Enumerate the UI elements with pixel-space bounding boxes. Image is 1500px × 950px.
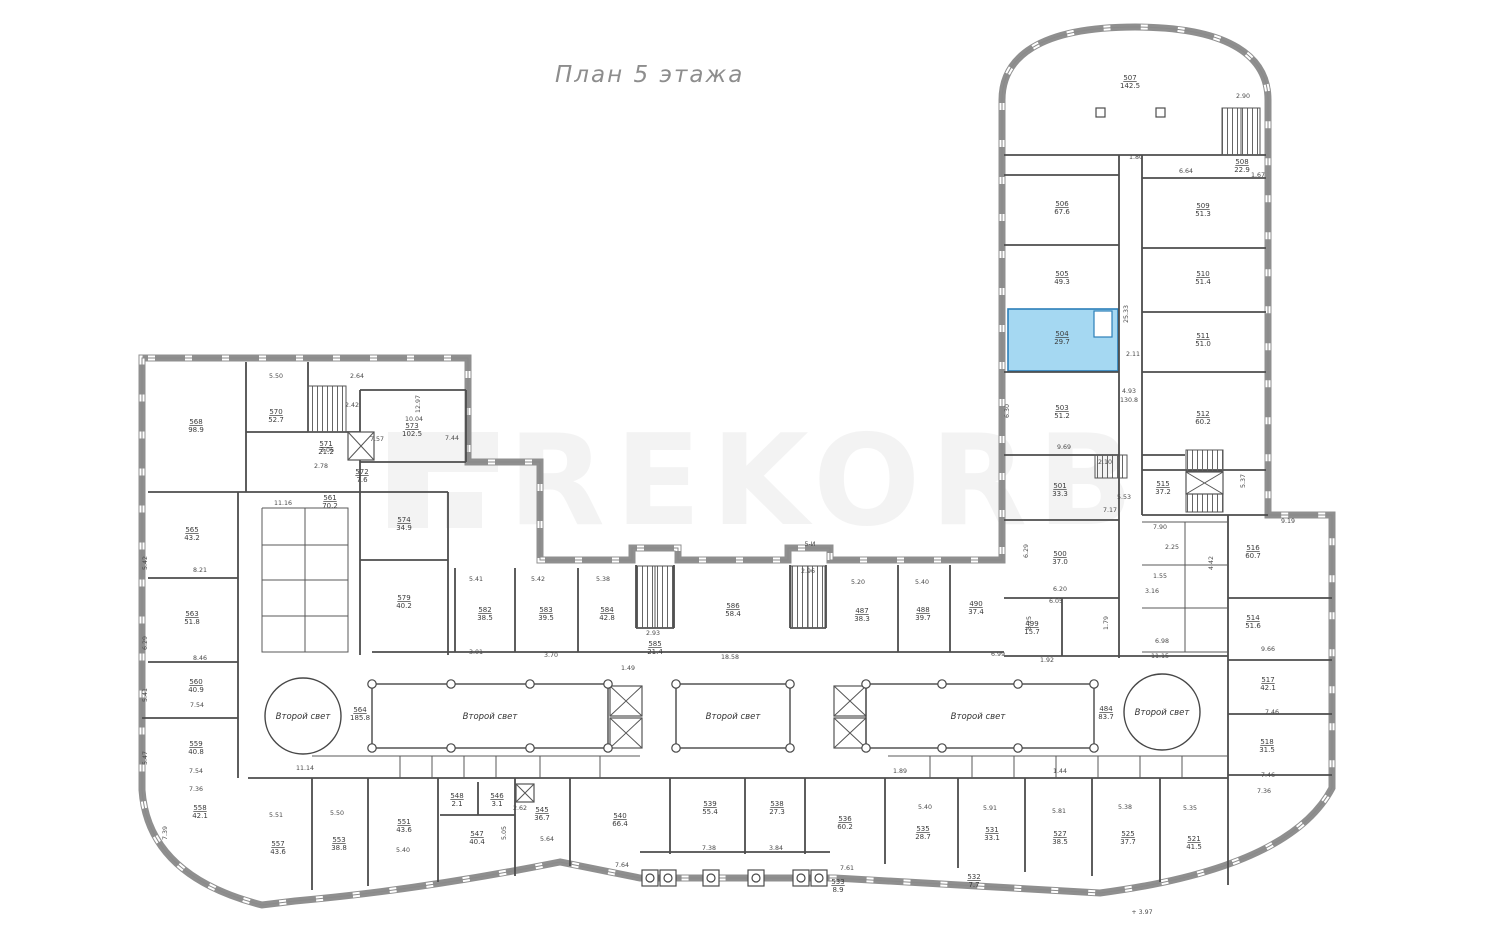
svg-text:1.49: 1.49 — [621, 665, 635, 672]
elevator-icon — [834, 718, 866, 748]
svg-text:6.29: 6.29 — [142, 636, 149, 650]
room-label-508: 50822.9 — [1234, 158, 1250, 174]
svg-text:4.93: 4.93 — [1122, 388, 1136, 395]
svg-text:4.42: 4.42 — [1208, 556, 1215, 570]
svg-text:43.6: 43.6 — [270, 848, 286, 856]
svg-text:5.47: 5.47 — [142, 751, 149, 765]
svg-text:2.10: 2.10 — [1098, 459, 1112, 466]
svg-text:6.20: 6.20 — [1053, 586, 1067, 593]
room-label-582: 58238.5 — [477, 606, 493, 622]
svg-text:507: 507 — [1123, 74, 1136, 82]
svg-text:484: 484 — [1099, 705, 1113, 713]
svg-text:1.44: 1.44 — [1053, 768, 1067, 775]
svg-text:51.2: 51.2 — [1054, 412, 1070, 420]
svg-text:5.42: 5.42 — [142, 556, 149, 570]
svg-text:7.46: 7.46 — [1265, 709, 1279, 716]
svg-text:9.66: 9.66 — [1261, 646, 1275, 653]
svg-text:540: 540 — [613, 812, 626, 820]
terrace-column — [748, 870, 764, 886]
svg-text:516: 516 — [1246, 544, 1260, 552]
room-label-509: 50951.3 — [1195, 202, 1211, 218]
room-label-574: 57434.9 — [396, 516, 412, 532]
svg-text:7.57: 7.57 — [370, 436, 384, 443]
room-label-548: 5482.1 — [450, 792, 463, 808]
svg-text:5.81: 5.81 — [1052, 808, 1066, 815]
svg-text:558: 558 — [193, 804, 206, 812]
svg-text:514: 514 — [1246, 614, 1260, 622]
dome-column — [1096, 108, 1105, 117]
staircase-icon — [1222, 108, 1260, 155]
svg-text:2.93: 2.93 — [646, 630, 660, 637]
svg-text:6.30: 6.30 — [1004, 404, 1011, 418]
svg-text:7.46: 7.46 — [1261, 772, 1275, 779]
svg-text:511: 511 — [1196, 332, 1209, 340]
svg-text:2.96: 2.96 — [801, 568, 815, 575]
terrace-column — [811, 870, 827, 886]
svg-text:561: 561 — [323, 494, 336, 502]
svg-text:7.61: 7.61 — [840, 865, 854, 872]
svg-text:572: 572 — [355, 468, 368, 476]
svg-text:546: 546 — [490, 792, 504, 800]
room-label-558: 55842.1 — [192, 804, 208, 820]
room-label-586: 58658.4 — [725, 602, 741, 618]
svg-text:83.7: 83.7 — [1098, 713, 1114, 721]
floor-plan-svg: REKORB План 5 этажа — [0, 0, 1500, 950]
svg-text:43.2: 43.2 — [184, 534, 200, 542]
elevator-icon — [834, 686, 866, 716]
svg-text:505: 505 — [1055, 270, 1068, 278]
svg-text:34.9: 34.9 — [396, 524, 412, 532]
svg-text:38.5: 38.5 — [1052, 838, 1068, 846]
svg-text:6.29: 6.29 — [1023, 544, 1030, 558]
svg-text:70.2: 70.2 — [322, 502, 338, 510]
svg-text:39.5: 39.5 — [538, 614, 554, 622]
svg-text:584: 584 — [600, 606, 614, 614]
svg-text:37.2: 37.2 — [1155, 488, 1171, 496]
svg-text:7.54: 7.54 — [189, 768, 203, 775]
room-label-488: 48839.7 — [915, 606, 931, 622]
svg-text:40.8: 40.8 — [188, 748, 204, 756]
svg-text:1.80: 1.80 — [1129, 154, 1143, 161]
svg-text:1.89: 1.89 — [893, 768, 907, 775]
room-label-585: 58521.4 — [647, 640, 663, 656]
room-label-568: 56898.9 — [188, 418, 204, 434]
svg-text:5.51: 5.51 — [269, 812, 283, 819]
svg-text:38.3: 38.3 — [854, 615, 870, 623]
room-label-527: 52738.5 — [1052, 830, 1068, 846]
svg-text:58.4: 58.4 — [725, 610, 741, 618]
svg-text:5.40: 5.40 — [396, 847, 410, 854]
staircase-icon — [637, 566, 673, 628]
svg-text:2.25: 2.25 — [1165, 544, 1179, 551]
svg-text:1.92: 1.92 — [1040, 657, 1054, 664]
room-label-511: 51151.0 — [1195, 332, 1211, 348]
svg-text:3.1: 3.1 — [491, 800, 502, 808]
svg-text:563: 563 — [185, 610, 198, 618]
svg-text:2.64: 2.64 — [350, 373, 364, 380]
svg-text:43.6: 43.6 — [396, 826, 412, 834]
svg-text:517: 517 — [1261, 676, 1274, 684]
room-label-539: 53955.4 — [702, 800, 718, 816]
svg-text:5.50: 5.50 — [269, 373, 283, 380]
svg-text:29.7: 29.7 — [1054, 338, 1070, 346]
room-label-536: 53660.2 — [837, 815, 853, 831]
terrace-column — [793, 870, 809, 886]
terrace-column — [642, 870, 658, 886]
svg-text:2.1: 2.1 — [451, 800, 462, 808]
svg-text:5.40: 5.40 — [915, 579, 929, 586]
svg-text:33.1: 33.1 — [984, 834, 1000, 842]
svg-text:5.42: 5.42 — [531, 576, 545, 583]
svg-text:509: 509 — [1196, 202, 1209, 210]
svg-text:51.6: 51.6 — [1245, 622, 1261, 630]
svg-text:533: 533 — [831, 878, 844, 886]
watermark-text: REKORB — [508, 407, 1143, 554]
svg-text:7.44: 7.44 — [445, 435, 459, 442]
room-label-504: 50429.7 — [1054, 330, 1070, 346]
svg-text:42.1: 42.1 — [192, 812, 208, 820]
room-label-551: 55143.6 — [396, 818, 412, 834]
svg-text:579: 579 — [397, 594, 410, 602]
svg-text:536: 536 — [838, 815, 852, 823]
svg-text:582: 582 — [478, 606, 491, 614]
svg-text:532: 532 — [967, 873, 980, 881]
room-label-572: 5727.6 — [355, 468, 368, 484]
room-label-560: 56040.9 — [188, 678, 204, 694]
svg-text:3.06: 3.06 — [320, 447, 334, 454]
svg-text:5.50: 5.50 — [330, 810, 344, 817]
svg-text:5.41: 5.41 — [469, 576, 483, 583]
svg-text:6.98: 6.98 — [1155, 638, 1169, 645]
svg-text:52.7: 52.7 — [268, 416, 284, 424]
svg-text:3.84: 3.84 — [769, 845, 783, 852]
svg-text:560: 560 — [189, 678, 202, 686]
svg-text:2.62: 2.62 — [513, 805, 527, 812]
staircase-icon — [308, 386, 346, 432]
svg-text:10.04: 10.04 — [405, 416, 423, 423]
svg-text:7.7: 7.7 — [968, 881, 979, 889]
svg-text:501: 501 — [1053, 482, 1066, 490]
svg-text:27.3: 27.3 — [769, 808, 785, 816]
svg-text:7.90: 7.90 — [1153, 524, 1167, 531]
room-label-570: 57052.7 — [268, 408, 284, 424]
svg-text:9.69: 9.69 — [1057, 444, 1071, 451]
elevator-icon — [1186, 472, 1223, 494]
svg-text:521: 521 — [1187, 835, 1200, 843]
svg-text:535: 535 — [916, 825, 929, 833]
svg-text:11.15: 11.15 — [1151, 653, 1169, 660]
svg-text:531: 531 — [985, 826, 998, 834]
svg-text:5.38: 5.38 — [1118, 804, 1132, 811]
room-label-579: 57940.2 — [396, 594, 412, 610]
svg-text:6.99: 6.99 — [991, 651, 1005, 658]
svg-text:41.5: 41.5 — [1186, 843, 1202, 851]
elevation-note: + 3.97 — [1131, 909, 1152, 916]
svg-text:102.5: 102.5 — [402, 430, 422, 438]
svg-text:7.54: 7.54 — [190, 702, 204, 709]
svg-text:37.7: 37.7 — [1120, 838, 1136, 846]
svg-text:500: 500 — [1053, 550, 1066, 558]
svg-text:33.3: 33.3 — [1052, 490, 1068, 498]
room-label-533: 5338.9 — [831, 878, 844, 894]
svg-text:142.5: 142.5 — [1120, 82, 1140, 90]
room-label-500: 50037.0 — [1052, 550, 1068, 566]
highlighted-room-notch — [1094, 311, 1112, 337]
svg-text:31.5: 31.5 — [1259, 746, 1275, 754]
page-title: План 5 этажа — [555, 62, 744, 88]
svg-text:5.64: 5.64 — [540, 836, 554, 843]
svg-text:583: 583 — [539, 606, 552, 614]
room-label-514: 51451.6 — [1245, 614, 1261, 630]
svg-text:3.01: 3.01 — [469, 649, 483, 656]
svg-text:7.36: 7.36 — [189, 786, 203, 793]
svg-text:60.7: 60.7 — [1245, 552, 1261, 560]
svg-text:38.8: 38.8 — [331, 844, 347, 852]
room-label-545: 54536.7 — [534, 806, 550, 822]
svg-text:25.33: 25.33 — [1123, 305, 1130, 323]
svg-text:98.9: 98.9 — [188, 426, 204, 434]
svg-text:490: 490 — [969, 600, 982, 608]
svg-text:551: 551 — [397, 818, 410, 826]
svg-text:40.4: 40.4 — [469, 838, 485, 846]
svg-text:2.42: 2.42 — [345, 402, 359, 409]
room-label-506: 50667.6 — [1054, 200, 1070, 216]
room-label-501: 50133.3 — [1052, 482, 1068, 498]
room-label-546: 5463.1 — [490, 792, 504, 808]
svg-text:527: 527 — [1053, 830, 1066, 838]
svg-text:22.9: 22.9 — [1234, 166, 1250, 174]
svg-text:538: 538 — [770, 800, 783, 808]
room-label-540: 54066.4 — [612, 812, 628, 828]
svg-text:8.21: 8.21 — [193, 567, 207, 574]
svg-text:51.8: 51.8 — [184, 618, 200, 626]
svg-text:548: 548 — [450, 792, 463, 800]
room-label-490: 49037.4 — [968, 600, 984, 616]
svg-text:7.17: 7.17 — [1103, 507, 1117, 514]
elevator-icon — [516, 784, 534, 802]
svg-text:1.55: 1.55 — [1153, 573, 1167, 580]
svg-text:28.7: 28.7 — [915, 833, 931, 841]
terrace-column — [703, 870, 719, 886]
room-label-487: 48738.3 — [854, 607, 870, 623]
svg-text:36.7: 36.7 — [534, 814, 550, 822]
svg-text:585: 585 — [648, 640, 661, 648]
room-label-531: 53133.1 — [984, 826, 1000, 842]
svg-text:37.4: 37.4 — [968, 608, 984, 616]
atrium-label: Второй свет — [951, 712, 1007, 722]
atrium-label: Второй свет — [1135, 708, 1191, 718]
svg-text:7.6: 7.6 — [356, 476, 368, 484]
svg-text:5.40: 5.40 — [918, 804, 932, 811]
svg-text:487: 487 — [855, 607, 868, 615]
svg-text:8.9: 8.9 — [832, 886, 843, 894]
svg-text:66.4: 66.4 — [612, 820, 628, 828]
svg-text:570: 570 — [269, 408, 282, 416]
svg-text:553: 553 — [332, 836, 345, 844]
room-label-532: 5327.7 — [967, 873, 980, 889]
svg-text:3.70: 3.70 — [544, 652, 558, 659]
elevator-icon — [610, 718, 642, 748]
svg-text:11.16: 11.16 — [274, 500, 292, 507]
svg-text:7.36: 7.36 — [1257, 788, 1271, 795]
svg-text:7.39: 7.39 — [162, 826, 169, 840]
room-label-563: 56351.8 — [184, 610, 200, 626]
svg-text:5.20: 5.20 — [851, 579, 865, 586]
room-label-484: 48483.7 — [1098, 705, 1114, 721]
svg-text:6.05: 6.05 — [1049, 598, 1063, 605]
room-label-510: 51051.4 — [1195, 270, 1211, 286]
room-label-512: 51260.2 — [1195, 410, 1211, 426]
svg-text:5.25: 5.25 — [1026, 616, 1033, 630]
svg-text:37.0: 37.0 — [1052, 558, 1068, 566]
staircase-icon — [1186, 494, 1223, 512]
svg-text:539: 539 — [703, 800, 716, 808]
svg-text:573: 573 — [405, 422, 418, 430]
svg-text:5.91: 5.91 — [983, 805, 997, 812]
svg-text:6.64: 6.64 — [1179, 168, 1193, 175]
svg-text:515: 515 — [1156, 480, 1169, 488]
room-label-515: 51537.2 — [1155, 480, 1171, 496]
atrium-label: Второй свет — [463, 712, 519, 722]
room-label-538: 53827.3 — [769, 800, 785, 816]
svg-text:51.4: 51.4 — [1195, 278, 1211, 286]
staircase-icon — [791, 566, 825, 628]
dome-column — [1156, 108, 1165, 117]
svg-text:510: 510 — [1196, 270, 1209, 278]
svg-text:2.11: 2.11 — [1126, 351, 1140, 358]
svg-text:559: 559 — [189, 740, 202, 748]
svg-text:545: 545 — [535, 806, 548, 814]
svg-text:5.05: 5.05 — [501, 826, 508, 840]
svg-text:55.4: 55.4 — [702, 808, 718, 816]
atrium-label: Второй свет — [276, 712, 332, 722]
svg-text:512: 512 — [1196, 410, 1209, 418]
svg-text:2.78: 2.78 — [314, 463, 328, 470]
svg-text:42.1: 42.1 — [1260, 684, 1276, 692]
svg-text:185.8: 185.8 — [350, 714, 370, 722]
svg-text:568: 568 — [189, 418, 202, 426]
svg-text:42.8: 42.8 — [599, 614, 615, 622]
svg-text:18.58: 18.58 — [721, 654, 739, 661]
room-label-547: 54740.4 — [469, 830, 485, 846]
room-label-516: 51660.7 — [1245, 544, 1261, 560]
svg-text:7.38: 7.38 — [702, 845, 716, 852]
room-label-525: 52537.7 — [1120, 830, 1136, 846]
room-label-583: 58339.5 — [538, 606, 554, 622]
axis-note: 5-И — [805, 541, 816, 548]
room-label-535: 53528.7 — [915, 825, 931, 841]
room-label-521: 52141.5 — [1186, 835, 1202, 851]
room-label-559: 55940.8 — [188, 740, 204, 756]
svg-text:40.2: 40.2 — [396, 602, 412, 610]
room-label-557: 55743.6 — [270, 840, 286, 856]
svg-text:565: 565 — [185, 526, 198, 534]
svg-text:38.5: 38.5 — [477, 614, 493, 622]
svg-text:504: 504 — [1055, 330, 1069, 338]
svg-text:39.7: 39.7 — [915, 614, 931, 622]
svg-text:5.53: 5.53 — [1117, 494, 1131, 501]
svg-text:557: 557 — [271, 840, 284, 848]
svg-text:9.19: 9.19 — [1281, 518, 1295, 525]
room-label-518: 51831.5 — [1259, 738, 1275, 754]
staircase-icon — [1186, 450, 1223, 471]
room-label-553: 55338.8 — [331, 836, 347, 852]
svg-text:1.67: 1.67 — [1251, 172, 1265, 179]
svg-text:1.79: 1.79 — [1103, 616, 1110, 630]
svg-text:508: 508 — [1235, 158, 1248, 166]
svg-text:21.4: 21.4 — [647, 648, 663, 656]
svg-text:51.3: 51.3 — [1195, 210, 1211, 218]
svg-text:488: 488 — [916, 606, 929, 614]
room-label-561: 56170.2 — [322, 494, 338, 510]
svg-text:2.90: 2.90 — [1236, 93, 1250, 100]
svg-text:51.0: 51.0 — [1195, 340, 1211, 348]
svg-text:525: 525 — [1121, 830, 1134, 838]
room-label-565: 56543.2 — [184, 526, 200, 542]
svg-text:7.64: 7.64 — [615, 862, 629, 869]
svg-text:8.46: 8.46 — [193, 655, 207, 662]
elevator-icon — [610, 686, 642, 716]
svg-text:67.6: 67.6 — [1054, 208, 1070, 216]
svg-text:506: 506 — [1055, 200, 1069, 208]
svg-text:3.16: 3.16 — [1145, 588, 1159, 595]
terrace-column — [660, 870, 676, 886]
room-label-584: 58442.8 — [599, 606, 615, 622]
room-label-505: 50549.3 — [1054, 270, 1070, 286]
svg-text:130.8: 130.8 — [1120, 397, 1138, 404]
svg-text:518: 518 — [1260, 738, 1273, 746]
svg-text:574: 574 — [397, 516, 411, 524]
svg-text:5.41: 5.41 — [142, 688, 149, 702]
svg-text:5.38: 5.38 — [596, 576, 610, 583]
svg-text:60.2: 60.2 — [1195, 418, 1211, 426]
svg-text:40.9: 40.9 — [188, 686, 204, 694]
svg-text:5.37: 5.37 — [1240, 474, 1247, 488]
svg-text:503: 503 — [1055, 404, 1068, 412]
room-label-517: 51742.1 — [1260, 676, 1276, 692]
svg-text:12.97: 12.97 — [415, 395, 422, 413]
atrium-label: Второй свет — [706, 712, 762, 722]
svg-text:5.35: 5.35 — [1183, 805, 1197, 812]
svg-text:49.3: 49.3 — [1054, 278, 1070, 286]
room-label-503: 50351.2 — [1054, 404, 1070, 420]
svg-text:586: 586 — [726, 602, 740, 610]
svg-text:11.14: 11.14 — [296, 765, 314, 772]
svg-text:547: 547 — [470, 830, 483, 838]
svg-text:564: 564 — [353, 706, 367, 714]
svg-text:60.2: 60.2 — [837, 823, 853, 831]
